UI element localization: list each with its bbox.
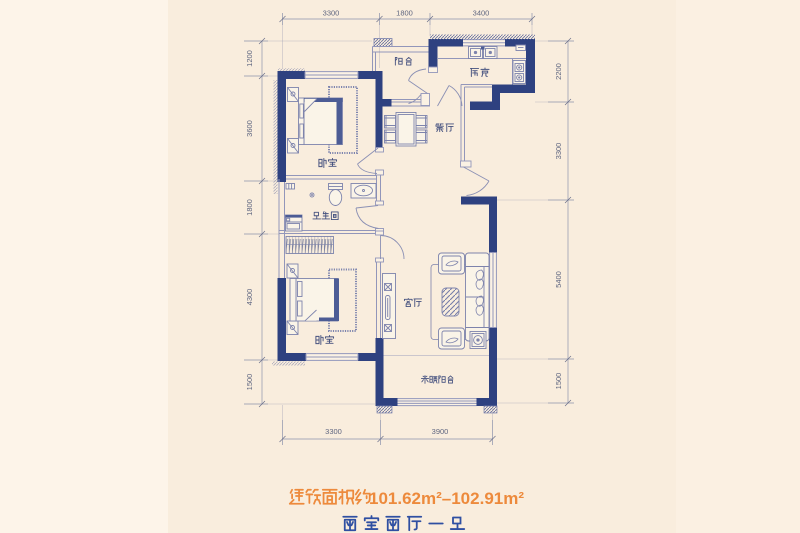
svg-text:4300: 4300 xyxy=(245,289,254,306)
svg-text:1500: 1500 xyxy=(245,374,254,391)
svg-text:5400: 5400 xyxy=(554,271,563,288)
svg-text:3300: 3300 xyxy=(554,143,563,160)
svg-text:1500: 1500 xyxy=(554,373,563,390)
svg-text:1800: 1800 xyxy=(245,199,254,216)
svg-text:1200: 1200 xyxy=(245,50,254,67)
svg-text:3300: 3300 xyxy=(323,9,340,18)
svg-text:3300: 3300 xyxy=(325,427,342,436)
svg-text:101.62m²–102.91m²: 101.62m²–102.91m² xyxy=(369,489,524,508)
svg-text:3400: 3400 xyxy=(473,9,490,18)
svg-text:3600: 3600 xyxy=(245,120,254,137)
svg-text:3900: 3900 xyxy=(432,427,449,436)
svg-text:1800: 1800 xyxy=(396,9,413,18)
svg-text:2200: 2200 xyxy=(554,63,563,80)
